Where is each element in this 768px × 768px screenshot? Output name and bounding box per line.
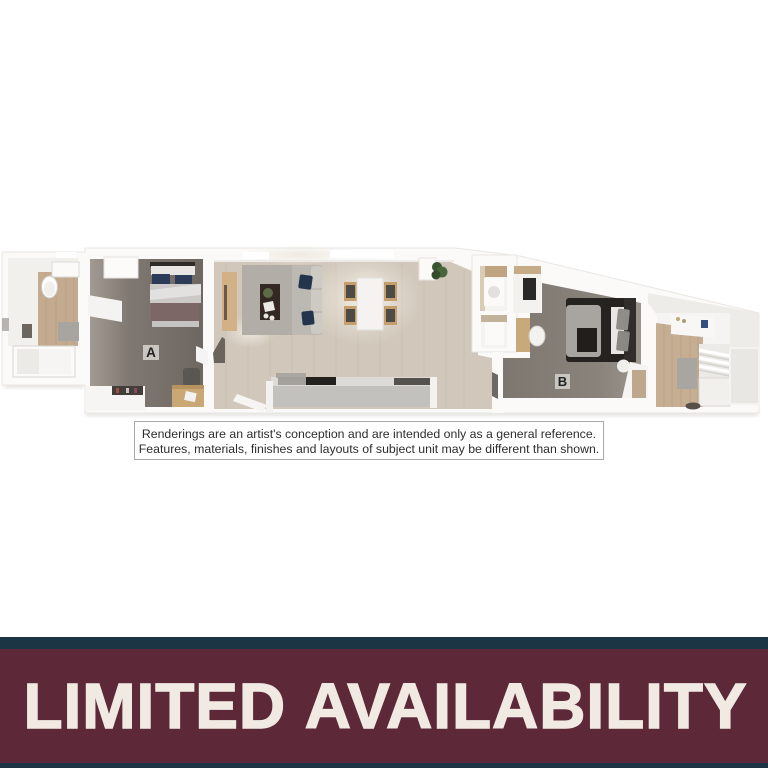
- svg-text:B: B: [558, 374, 567, 389]
- svg-text:A: A: [146, 345, 156, 360]
